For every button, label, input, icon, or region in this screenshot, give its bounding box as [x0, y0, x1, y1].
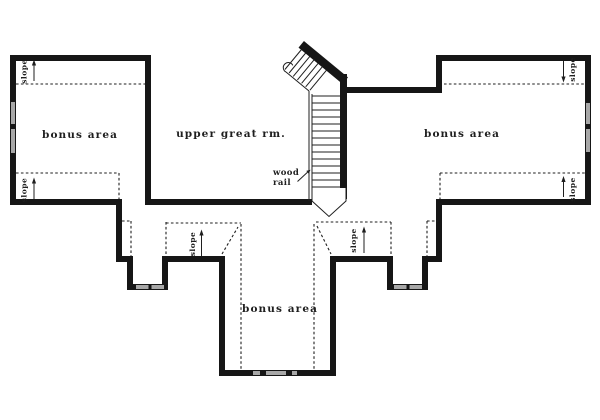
wall-segment	[330, 256, 336, 376]
slope-arrow-down-icon	[561, 61, 565, 83]
wood-rail-label-line2: rail	[273, 178, 291, 188]
slope-annotation-top-left: slope	[20, 59, 37, 84]
wall-segment	[145, 199, 312, 205]
slope-break-dashed-lines	[16, 84, 585, 370]
window-mullion	[149, 285, 152, 289]
dashed-line	[317, 226, 331, 254]
room-label-bonus-bottom: bonus area	[242, 303, 318, 315]
wall-segment	[436, 55, 442, 93]
wall-segment	[116, 199, 122, 262]
wall-segment	[145, 55, 151, 205]
slope-label: slope	[349, 228, 358, 253]
window-mullion	[586, 124, 590, 129]
wall-segment	[219, 256, 225, 376]
wall-segment	[344, 87, 438, 93]
window-mullion	[260, 371, 266, 375]
slope-annotation-lower-left: slope	[188, 230, 204, 257]
slope-annotation-lower-right: slope	[349, 227, 366, 254]
slope-arrow-up-icon	[32, 60, 36, 82]
window-mullion	[11, 124, 15, 129]
windows	[11, 102, 590, 375]
room-label-bonus-left: bonus area	[42, 129, 118, 141]
floor-plan-page: slope slope slope slope slope	[0, 0, 600, 420]
window-mullion	[286, 371, 292, 375]
room-label-upper-great: upper great rm.	[176, 128, 286, 140]
wall-segment	[10, 55, 151, 61]
stair-treads-vertical	[312, 96, 340, 187]
slope-arrow-up-icon	[32, 178, 36, 200]
slope-annotation-bottom-left: slope	[20, 178, 37, 203]
room-label-bonus-right: bonus area	[424, 128, 500, 140]
wall-segment	[330, 256, 393, 262]
slope-label: slope	[20, 178, 29, 203]
slope-label: slope	[20, 59, 29, 84]
wall-segment	[422, 256, 442, 262]
wall-segment	[436, 199, 442, 262]
floor-plan-drawing: slope slope slope slope slope	[0, 0, 600, 420]
slope-label: slope	[568, 177, 577, 202]
dashed-line	[222, 227, 238, 254]
stair-direction-marker	[312, 188, 346, 217]
slope-arrow-up-icon	[362, 227, 366, 254]
exterior-walls	[10, 47, 591, 376]
slope-label: slope	[188, 232, 197, 257]
wood-rail-callout: wood rail	[272, 168, 311, 188]
wood-rail-label-line1: wood	[272, 168, 299, 178]
slope-arrow-up-icon	[199, 230, 203, 257]
slope-annotation-bottom-right: slope	[561, 176, 577, 202]
slope-label: slope	[568, 57, 577, 82]
slope-arrow-up-icon	[561, 176, 565, 197]
window-mullion	[407, 285, 410, 289]
